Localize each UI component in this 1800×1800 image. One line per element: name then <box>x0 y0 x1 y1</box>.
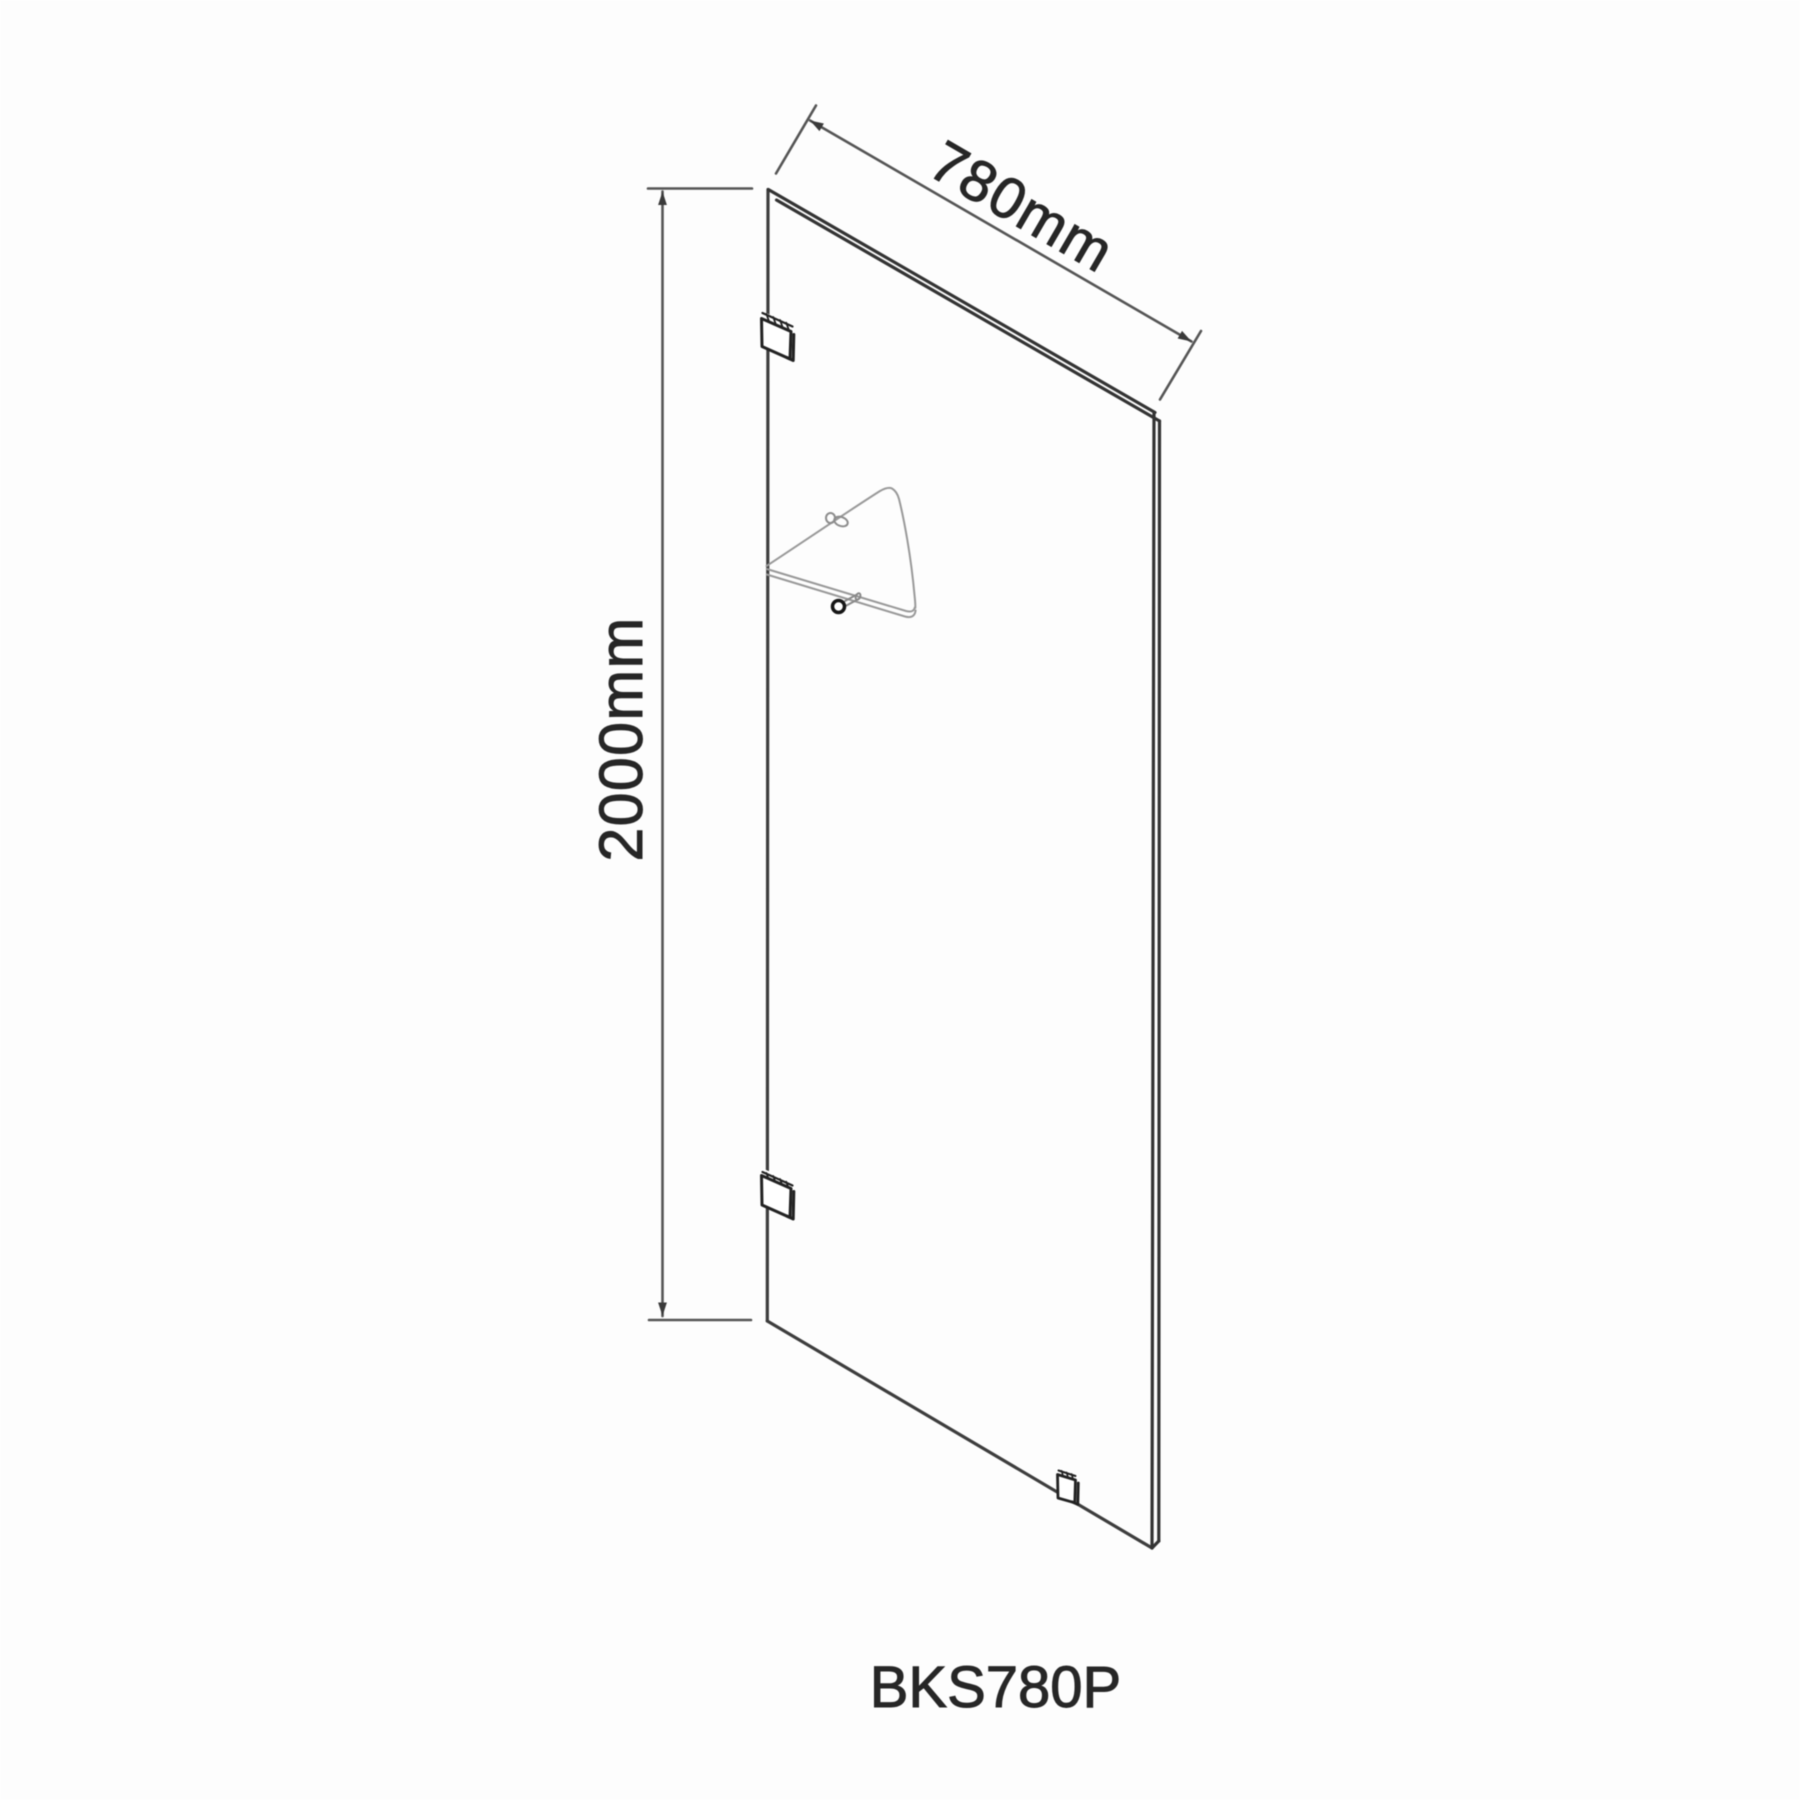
svg-text:BKS780P: BKS780P <box>870 1655 1122 1720</box>
svg-text:2000mm: 2000mm <box>587 616 655 861</box>
